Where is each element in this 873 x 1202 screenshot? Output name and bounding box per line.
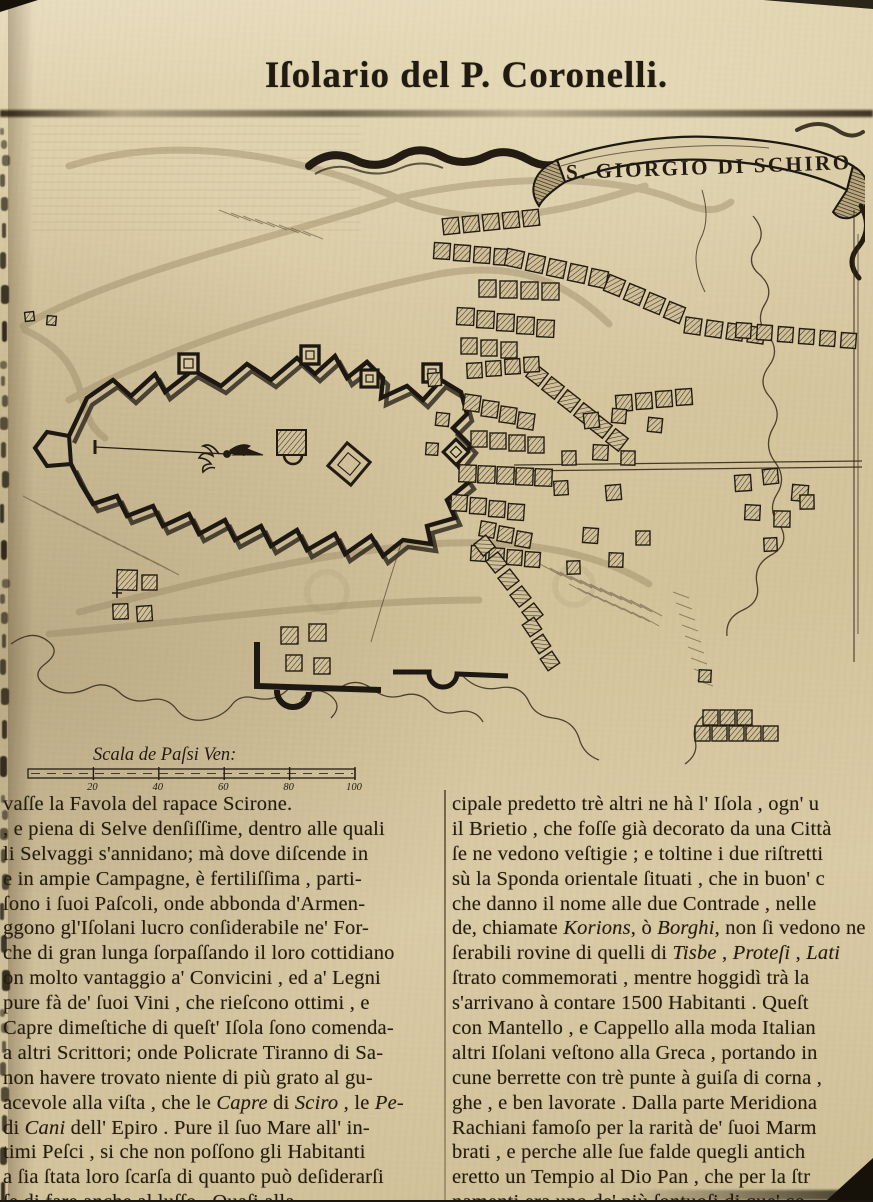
coastline: [11, 216, 784, 764]
text-line: vaſſe la Favola del rapace Scirone.: [3, 792, 441, 817]
text-line: e in ampie Campagne, è fertiliſſima , pa…: [3, 867, 441, 892]
text-line: eretto un Tempio al Dio Pan , che per la…: [452, 1165, 873, 1190]
fort-west-bastion: [35, 432, 71, 466]
text-line: di Cani dell' Epiro . Pure il ſuo Mare a…: [3, 1116, 441, 1141]
text-line: ſe ne vedono veſtigie ; e toltine i due …: [452, 842, 873, 867]
text-columns: vaſſe la Favola del rapace Scirone., e p…: [0, 788, 873, 1200]
showthrough-text-ghost: [31, 124, 361, 234]
text-line: con Mantello , e Cappello alla moda Ital…: [452, 1016, 873, 1041]
text-line: che di gran lunga ſorpaſſando il loro co…: [3, 941, 441, 966]
town-blocks: [25, 209, 857, 741]
photo-corner-top-right: [763, 0, 873, 9]
photo-backdrop: { "page": { "header_title": "Iſolario de…: [0, 0, 873, 1200]
text-line: pure fà de' ſuoi Vini , che rieſcono ott…: [3, 991, 441, 1016]
text-line: cune berrette con trè punte à guiſa di c…: [452, 1066, 873, 1091]
fort-keep: [328, 443, 370, 485]
text-line: ſono i ſuoi Paſcoli, onde abbonda d'Arme…: [3, 892, 441, 917]
text-line: cipale predetto trè altri ne hà l' Iſola…: [452, 792, 873, 817]
scale-bar: Scala de Paſsi Ven: 20406080100: [28, 745, 363, 792]
text-line: Rachiani famoſo per la rarità de' ſuoi M…: [452, 1116, 873, 1141]
text-line: s'arrivano à contare 1500 Habitanti . Qu…: [452, 991, 873, 1016]
text-line: ſerabili rovine di quelli di Tisbe , Pro…: [452, 941, 873, 966]
text-line: che danno il nome alle due Contrade , ne…: [452, 892, 873, 917]
text-line: a altri Scrittori; onde Policrate Tirann…: [3, 1041, 441, 1066]
text-line: , e piena di Selve denſiſſime, dentro al…: [3, 817, 441, 842]
map-engraving: S. GIORGIO DI SCHIRO: [9, 114, 865, 792]
text-line: brati , e perche alle ſue falde quegli a…: [452, 1140, 873, 1165]
text-line: ſtrato commemorati , mentre hoggidì trà …: [452, 966, 873, 991]
text-line: a ſia ſtata loro ſcarſa di quanto può de…: [3, 1165, 441, 1190]
fortress: [35, 346, 476, 642]
text-line: ggono gl'Iſolani lucro conſiderabile ne'…: [3, 916, 441, 941]
map-svg: S. GIORGIO DI SCHIRO: [9, 114, 865, 792]
text-line: altri Iſolani veſtono alla Greca , porta…: [452, 1041, 873, 1066]
text-line: acevole alla viſta , che le Capre di Sci…: [3, 1091, 441, 1116]
text-line: sù la Sponda orientale ſituati , che in …: [452, 867, 873, 892]
column-rule: [444, 790, 446, 1200]
text-line: ſe di fare anche al luſſo . Quaſi alla: [3, 1190, 441, 1200]
fort-church: [277, 430, 306, 464]
right-column: cipale predetto trè altri ne hà l' Iſola…: [452, 792, 873, 1200]
text-line: timi Peſci , si che non poſſono gli Habi…: [3, 1140, 441, 1165]
fort-compass-needle: [95, 440, 263, 472]
text-line: on molto vantaggio a' Convicini , ed a' …: [3, 966, 441, 991]
text-line: il Brietio , che foſſe già decorato da u…: [452, 817, 873, 842]
text-line: li Selvaggi s'annidano; mà dove diſcende…: [3, 842, 441, 867]
text-line: non havere trovato niente di più grato a…: [3, 1066, 441, 1091]
book-page: Iſolario del P. Coronelli.: [0, 0, 873, 1200]
left-column: vaſſe la Favola del rapace Scirone., e p…: [3, 792, 441, 1200]
page-title: Iſolario del P. Coronelli.: [265, 54, 668, 97]
text-line: Capre dimeſtiche di queſt' Iſola ſono co…: [3, 1016, 441, 1041]
harbour-walls: [257, 642, 508, 707]
text-line: de, chiamate Korions, ò Borghi, non ſi v…: [452, 916, 873, 941]
text-line: ghe , e ben lavorate . Dalla parte Merid…: [452, 1091, 873, 1116]
scale-label: Scala de Paſsi Ven:: [93, 745, 236, 765]
